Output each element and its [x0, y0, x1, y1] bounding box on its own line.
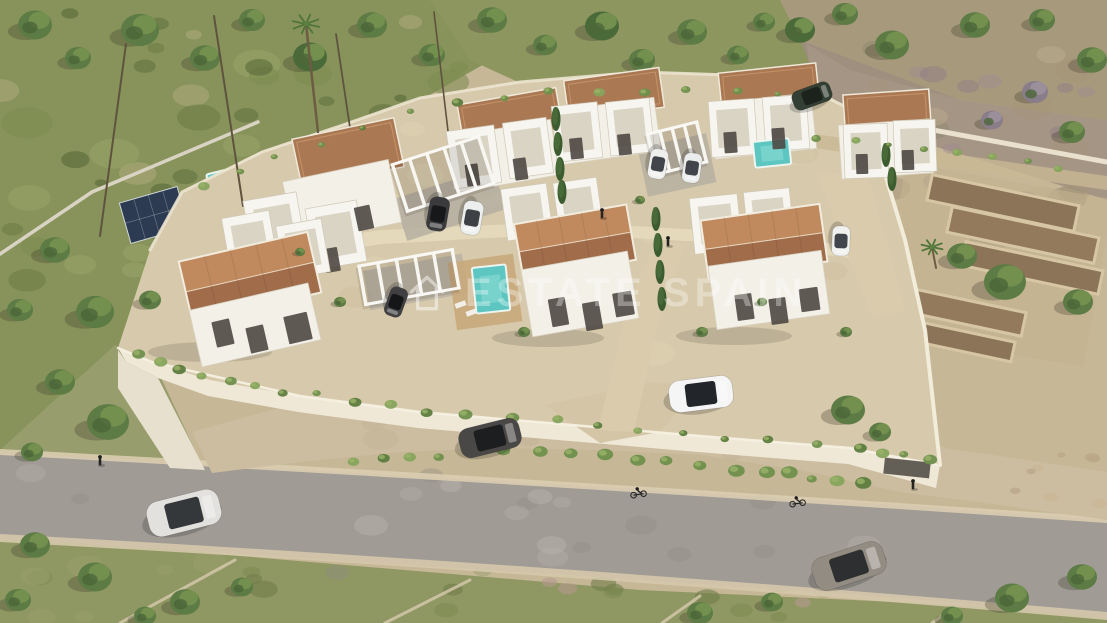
scene-canvas: [0, 0, 1107, 623]
villa-roof-terrace: [893, 119, 937, 172]
cypress: [656, 260, 665, 284]
cypress: [658, 287, 667, 311]
cypress: [888, 167, 897, 191]
aerial-render: ESTATE SPAIN: [0, 0, 1107, 623]
villa-shadow: [676, 327, 792, 345]
cypress: [558, 180, 567, 204]
cypress: [554, 132, 563, 156]
villa-roof-terrace: [502, 117, 553, 179]
villa-pool: [472, 264, 511, 313]
villa-window: [569, 137, 584, 159]
villa-window: [723, 132, 737, 154]
cypress: [556, 157, 565, 181]
villa-window: [856, 154, 869, 174]
villa-window: [768, 297, 788, 325]
cypress: [654, 233, 663, 257]
villa-window: [617, 133, 632, 155]
villa-window: [734, 293, 754, 321]
villa-pool: [753, 138, 792, 168]
cypress: [552, 107, 561, 131]
villa-window: [902, 150, 915, 170]
villa-window: [771, 128, 785, 150]
villa-window: [798, 287, 820, 312]
cypress: [652, 207, 661, 231]
